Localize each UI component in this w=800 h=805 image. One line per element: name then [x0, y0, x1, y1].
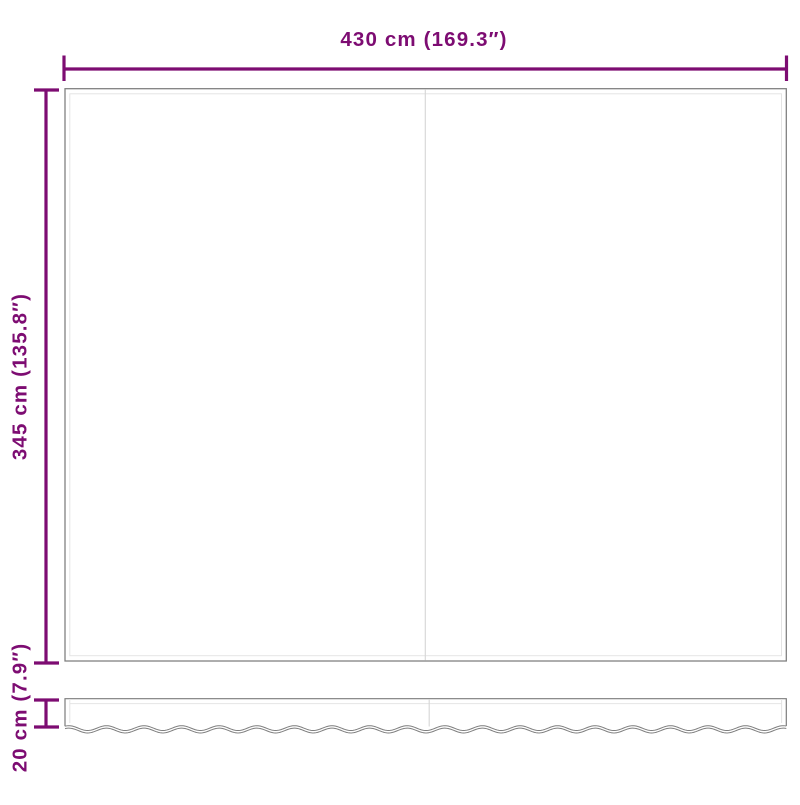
svg-text:430 cm (169.3″): 430 cm (169.3″) — [340, 28, 507, 51]
svg-text:345 cm (135.8″): 345 cm (135.8″) — [8, 293, 31, 460]
svg-text:20 cm (7.9″): 20 cm (7.9″) — [8, 643, 31, 773]
